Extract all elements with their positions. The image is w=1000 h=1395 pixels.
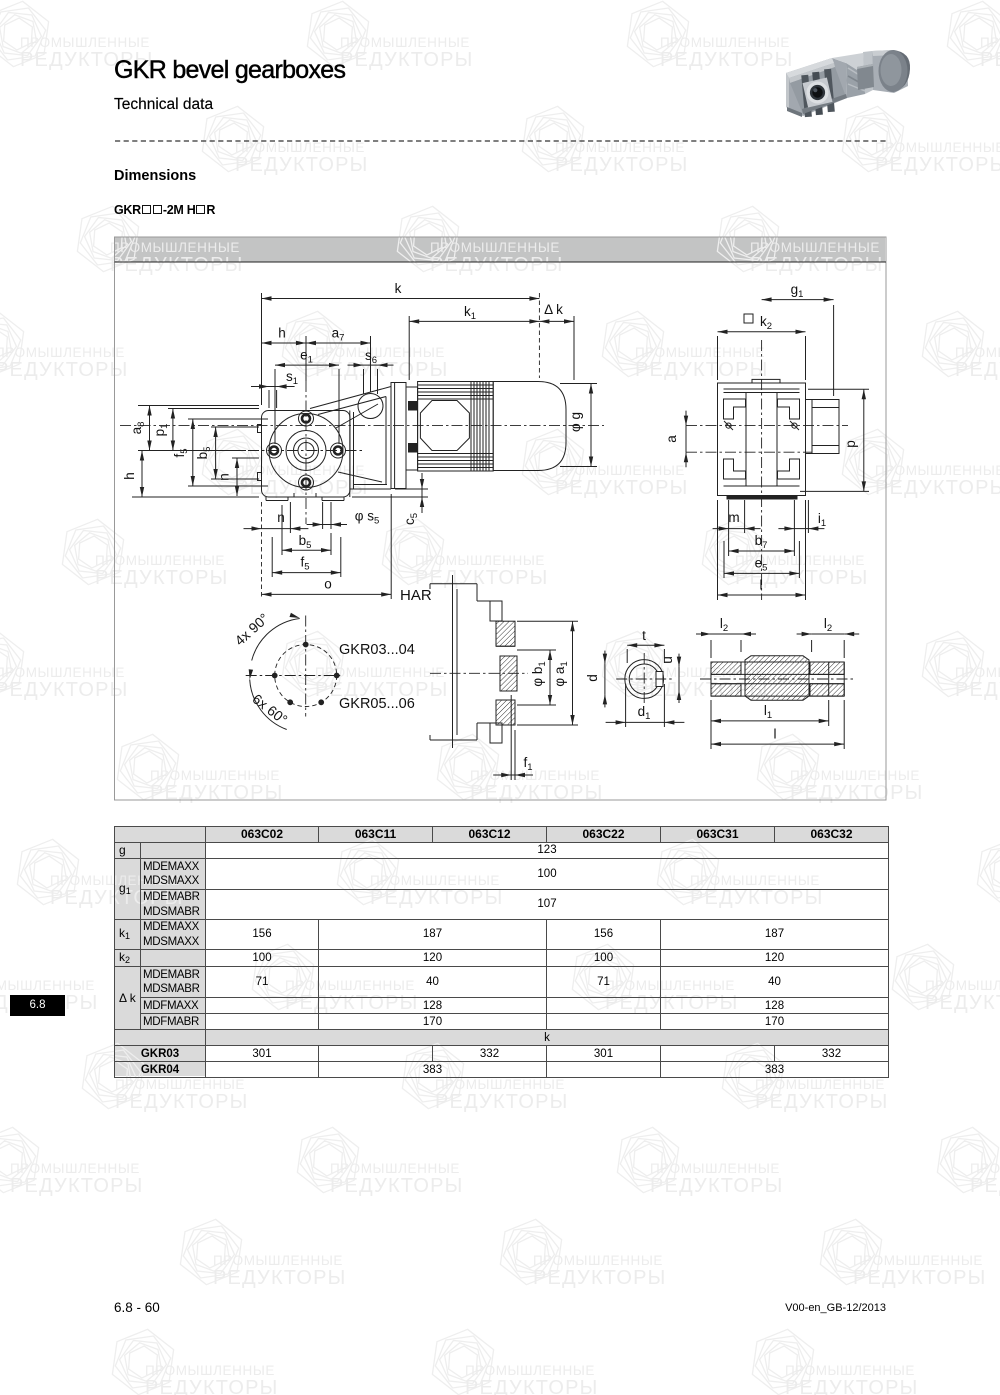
svg-text:s1: s1	[286, 369, 298, 387]
svg-text:l: l	[760, 578, 763, 593]
svg-text:b5: b5	[299, 533, 312, 551]
svg-text:GKR03...04: GKR03...04	[339, 642, 415, 658]
svg-text:φ s5: φ s5	[355, 509, 380, 527]
svg-text:a: a	[664, 435, 679, 443]
svg-text:Δ k: Δ k	[544, 302, 563, 317]
svg-text:φ b1: φ b1	[530, 661, 548, 686]
svg-text:φ a1: φ a1	[552, 661, 570, 686]
svg-text:k2: k2	[760, 314, 772, 332]
svg-text:h: h	[122, 472, 137, 480]
svg-text:φ g: φ g	[568, 412, 583, 432]
svg-text:c5: c5	[402, 513, 420, 525]
svg-text:GKR05...06: GKR05...06	[339, 696, 415, 712]
svg-text:f1: f1	[523, 755, 532, 773]
svg-text:u: u	[660, 656, 675, 664]
svg-text:a8: a8	[129, 422, 147, 435]
svg-text:m: m	[728, 510, 739, 525]
svg-text:k: k	[395, 281, 402, 296]
svg-text:l1: l1	[764, 703, 772, 721]
svg-text:6x 60°: 6x 60°	[249, 690, 290, 727]
svg-text:i1: i1	[818, 511, 826, 529]
svg-text:l: l	[774, 727, 777, 742]
svg-text:a7: a7	[332, 326, 345, 344]
svg-text:n: n	[277, 510, 285, 525]
svg-text:k1: k1	[464, 304, 476, 322]
svg-text:h: h	[278, 326, 286, 341]
svg-text:p: p	[843, 440, 858, 448]
svg-text:n: n	[217, 473, 232, 481]
svg-text:b7: b7	[755, 533, 768, 551]
svg-text:e5: e5	[755, 556, 768, 574]
svg-text:g1: g1	[791, 282, 804, 300]
svg-text:l2: l2	[824, 616, 832, 634]
svg-text:s6: s6	[365, 348, 377, 366]
svg-text:o: o	[324, 577, 332, 592]
svg-text:b5: b5	[195, 447, 213, 460]
svg-text:t: t	[642, 628, 646, 643]
svg-text:l2: l2	[720, 616, 728, 634]
svg-text:4x 90°: 4x 90°	[231, 610, 271, 649]
svg-text:f5: f5	[300, 555, 309, 573]
svg-text:HAR: HAR	[400, 587, 432, 604]
svg-text:d: d	[585, 674, 600, 682]
svg-text:f5: f5	[172, 448, 190, 457]
svg-text:d1: d1	[638, 704, 651, 722]
